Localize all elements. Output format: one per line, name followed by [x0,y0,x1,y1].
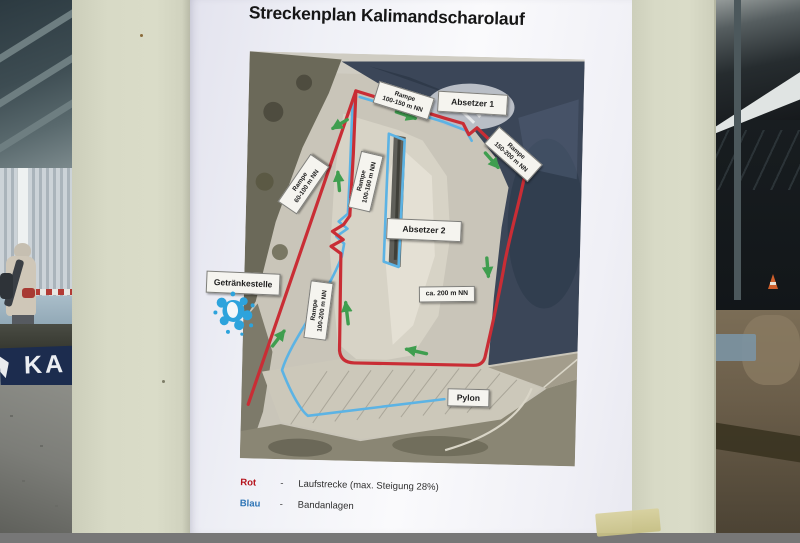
legend-row-blau: Blau - Bandanlagen [240,496,540,517]
legend-separator: - [280,499,298,510]
poster-title: Streckenplan Kalimandscharolauf [212,1,562,31]
legend-desc-rot: Laufstrecke (max. Steigung 28%) [298,478,439,492]
label-line: Absetzer 2 [387,223,460,237]
legend-term-blau: Blau [240,498,280,510]
label-absetzer-1: Absetzer 1 [437,91,508,116]
label-pylon: Pylon [447,388,489,407]
legend-term-rot: Rot [240,477,280,489]
legend-row-rot: Rot - Laufstrecke (max. Steigung 28%) [240,475,540,496]
label-line: Getränkestelle [207,276,279,290]
poster-content: Streckenplan Kalimandscharolauf [0,0,800,543]
label-line: Absetzer 1 [438,96,507,111]
label-line: ca. 200 m NN [420,290,474,299]
label-ca-200: ca. 200 m NN [419,286,475,303]
legend-desc-blau: Bandanlagen [298,499,354,511]
label-absetzer-2: Absetzer 2 [386,218,462,242]
label-line: Pylon [448,392,488,404]
legend-separator: - [280,478,298,489]
water-splash-icon [211,289,258,336]
